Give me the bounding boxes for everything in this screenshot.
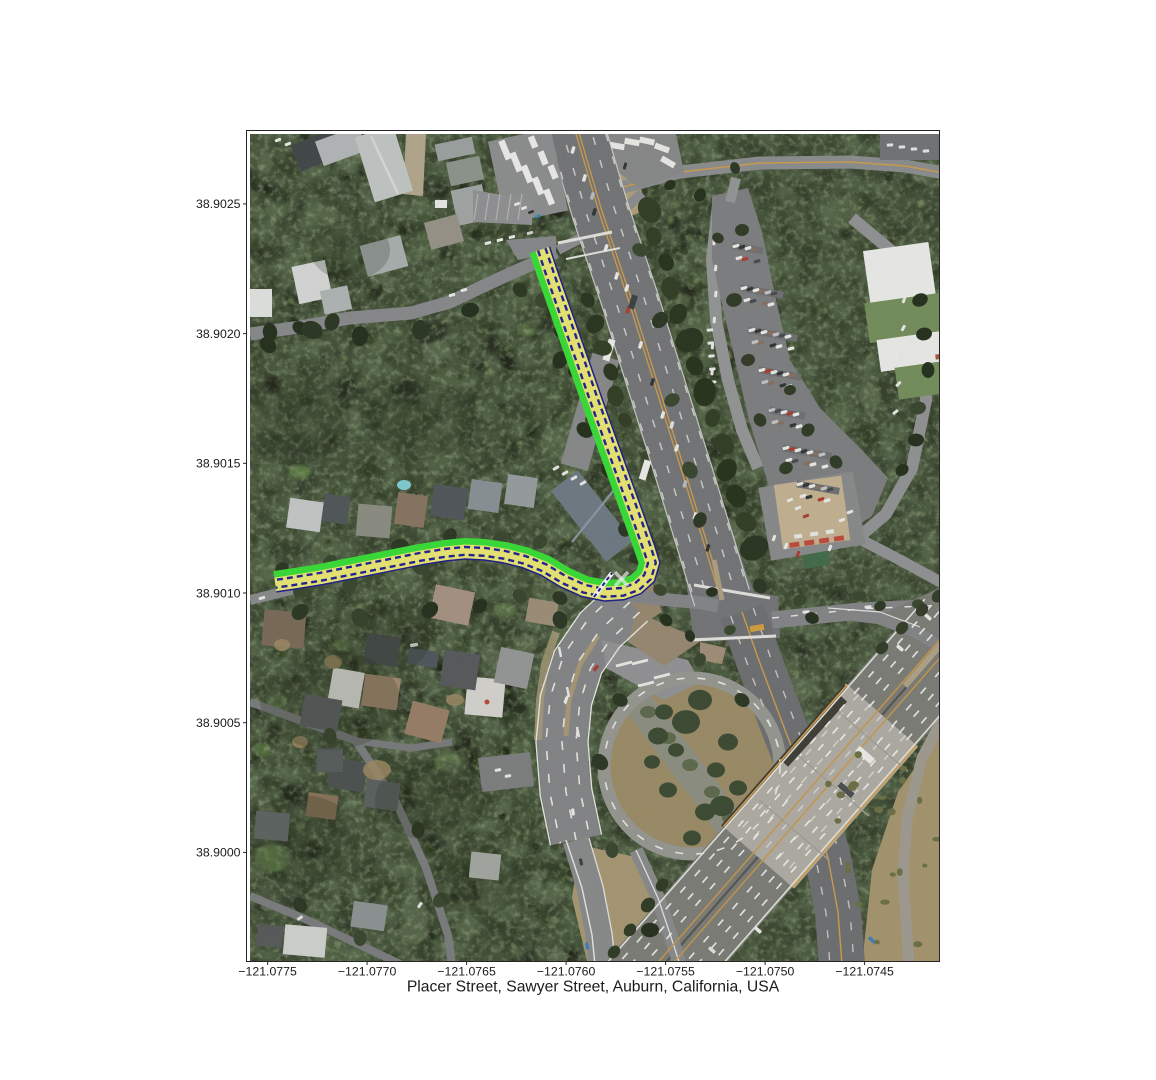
svg-text:−121.0765: −121.0765	[437, 965, 496, 979]
svg-text:−121.0760: −121.0760	[537, 965, 596, 979]
svg-text:−121.0775: −121.0775	[238, 965, 297, 979]
svg-text:38.9010: 38.9010	[196, 586, 241, 600]
svg-text:38.9015: 38.9015	[196, 457, 241, 471]
svg-text:−121.0750: −121.0750	[736, 965, 795, 979]
svg-text:Placer Street, Sawyer Street,: Placer Street, Sawyer Street, Auburn, Ca…	[407, 979, 780, 996]
svg-text:38.9025: 38.9025	[196, 197, 241, 211]
svg-text:−121.0755: −121.0755	[636, 965, 695, 979]
svg-text:38.9000: 38.9000	[196, 846, 241, 860]
svg-text:−121.0770: −121.0770	[338, 965, 397, 979]
svg-text:38.9020: 38.9020	[196, 327, 241, 341]
svg-text:38.9005: 38.9005	[196, 716, 241, 730]
svg-text:−121.0745: −121.0745	[835, 965, 894, 979]
